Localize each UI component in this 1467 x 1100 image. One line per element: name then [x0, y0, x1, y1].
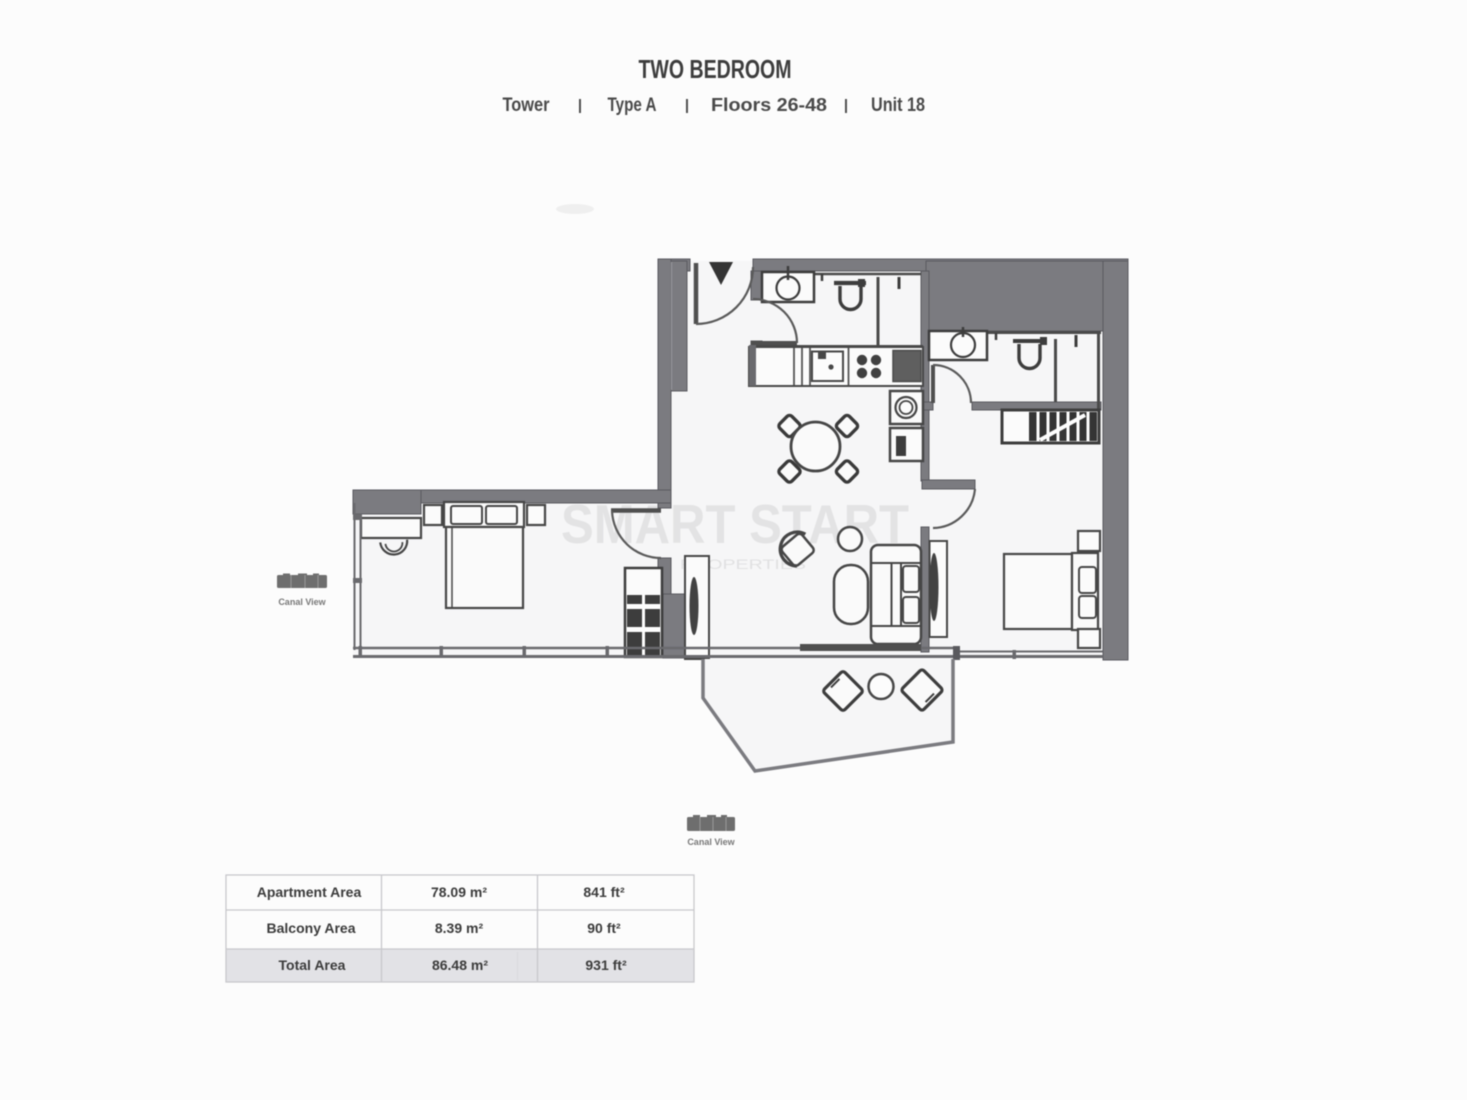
svg-text:8.39 m²: 8.39 m²: [435, 920, 484, 936]
svg-text:Tower: Tower: [503, 95, 551, 116]
svg-text:|: |: [578, 97, 582, 114]
svg-text:TWO BEDROOM: TWO BEDROOM: [639, 54, 792, 84]
svg-text:90 ft²: 90 ft²: [587, 920, 621, 936]
svg-text:841 ft²: 841 ft²: [583, 884, 625, 900]
svg-text:Apartment Area: Apartment Area: [257, 884, 362, 900]
svg-text:Canal View: Canal View: [687, 837, 735, 847]
svg-text:Total Area: Total Area: [279, 957, 346, 973]
svg-text:Unit 18: Unit 18: [871, 95, 925, 116]
svg-text:931 ft²: 931 ft²: [585, 957, 627, 973]
svg-text:78.09 m²: 78.09 m²: [431, 884, 487, 900]
svg-text:|: |: [685, 97, 689, 114]
svg-text:|: |: [844, 97, 848, 114]
svg-text:Balcony Area: Balcony Area: [267, 920, 356, 936]
svg-text:Floors 26-48: Floors 26-48: [711, 94, 827, 115]
svg-text:Canal View: Canal View: [278, 597, 326, 607]
svg-text:Type A: Type A: [608, 95, 657, 116]
svg-text:86.48 m²: 86.48 m²: [432, 957, 488, 973]
